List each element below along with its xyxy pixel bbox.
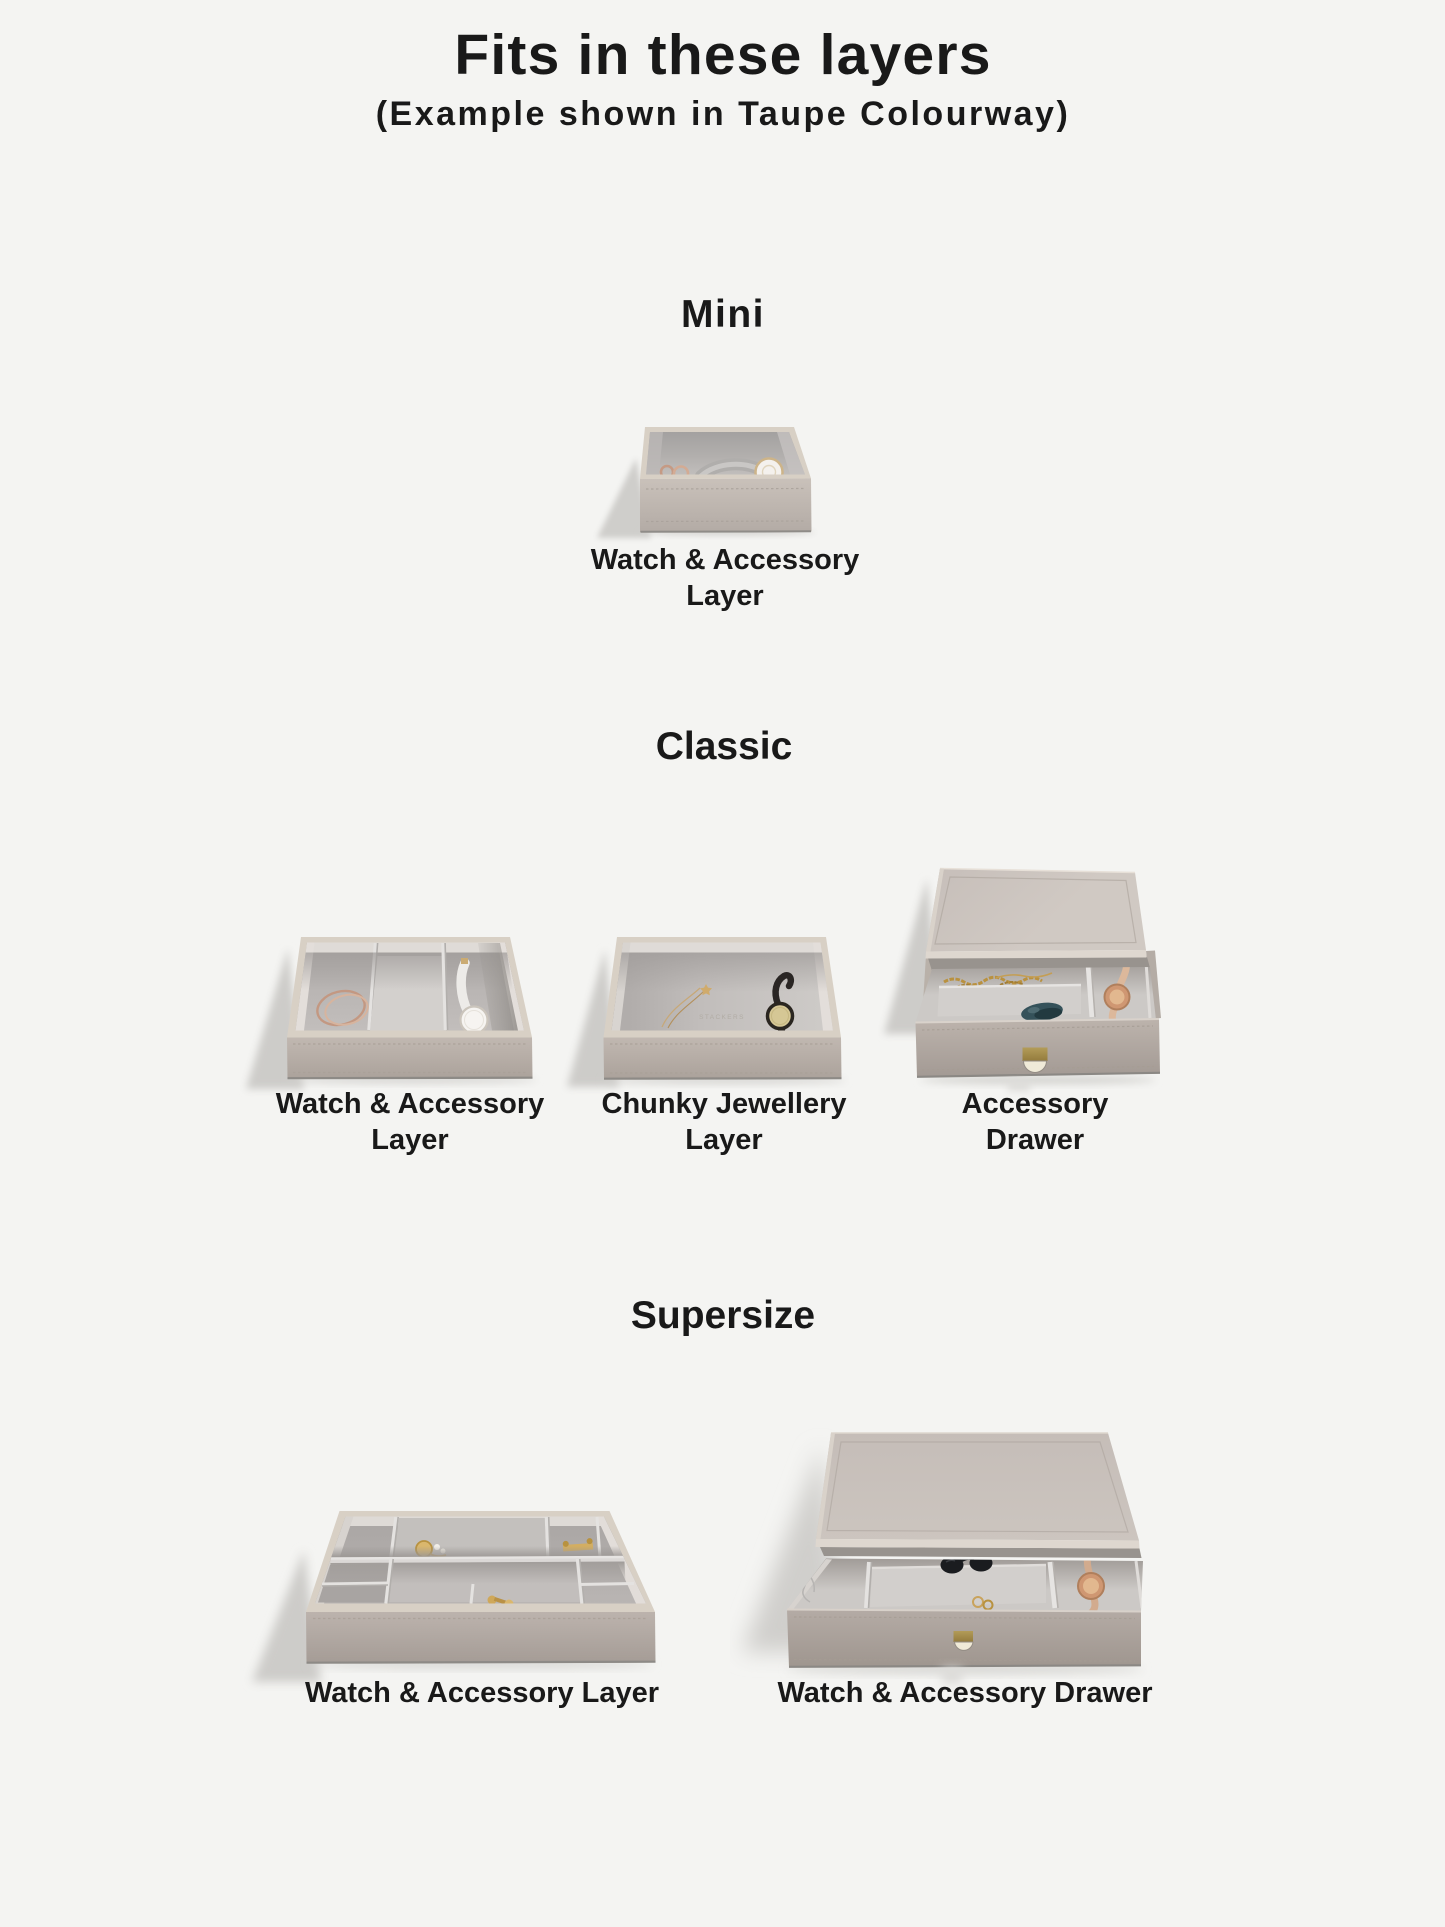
svg-text:STACKERS: STACKERS xyxy=(699,1014,745,1021)
